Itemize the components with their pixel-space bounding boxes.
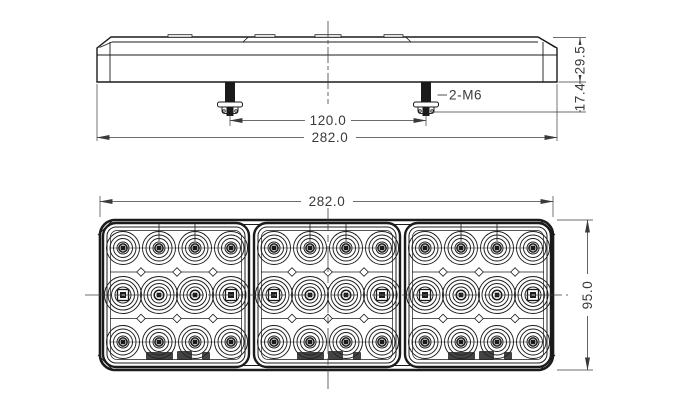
- dimension-body-height: 29.5: [553, 38, 588, 83]
- technical-drawing-canvas: 120.0 282.0 2-M6 29.5 17.4: [0, 0, 673, 401]
- front-height-label: 95.0: [580, 281, 595, 310]
- stud-spacing-label: 120.0: [310, 113, 347, 128]
- front-view: 282.0 95.0: [85, 194, 595, 389]
- stud-spec-label: 2-M6: [449, 88, 482, 103]
- stud-length-label: 17.4: [573, 83, 588, 112]
- lens-split-mark: [243, 37, 248, 42]
- dimension-front-width: 282.0: [100, 194, 553, 217]
- top-overall-width-label: 282.0: [312, 130, 349, 145]
- stud-spec-leader: 2-M6: [438, 88, 483, 103]
- front-width-label: 282.0: [309, 194, 346, 209]
- stud-washer: [414, 102, 439, 107]
- body-height-label: 29.5: [573, 46, 588, 75]
- top-view: 120.0 282.0 2-M6 29.5 17.4: [97, 21, 588, 145]
- mounting-stud: [414, 83, 439, 127]
- dimension-stud-spacing: 120.0: [230, 113, 426, 128]
- stud-washer: [218, 102, 243, 107]
- mounting-stud: [218, 83, 243, 127]
- dimension-front-height: 95.0: [557, 220, 595, 370]
- lens-split-mark: [406, 37, 411, 42]
- lamp-body-profile: [97, 35, 557, 82]
